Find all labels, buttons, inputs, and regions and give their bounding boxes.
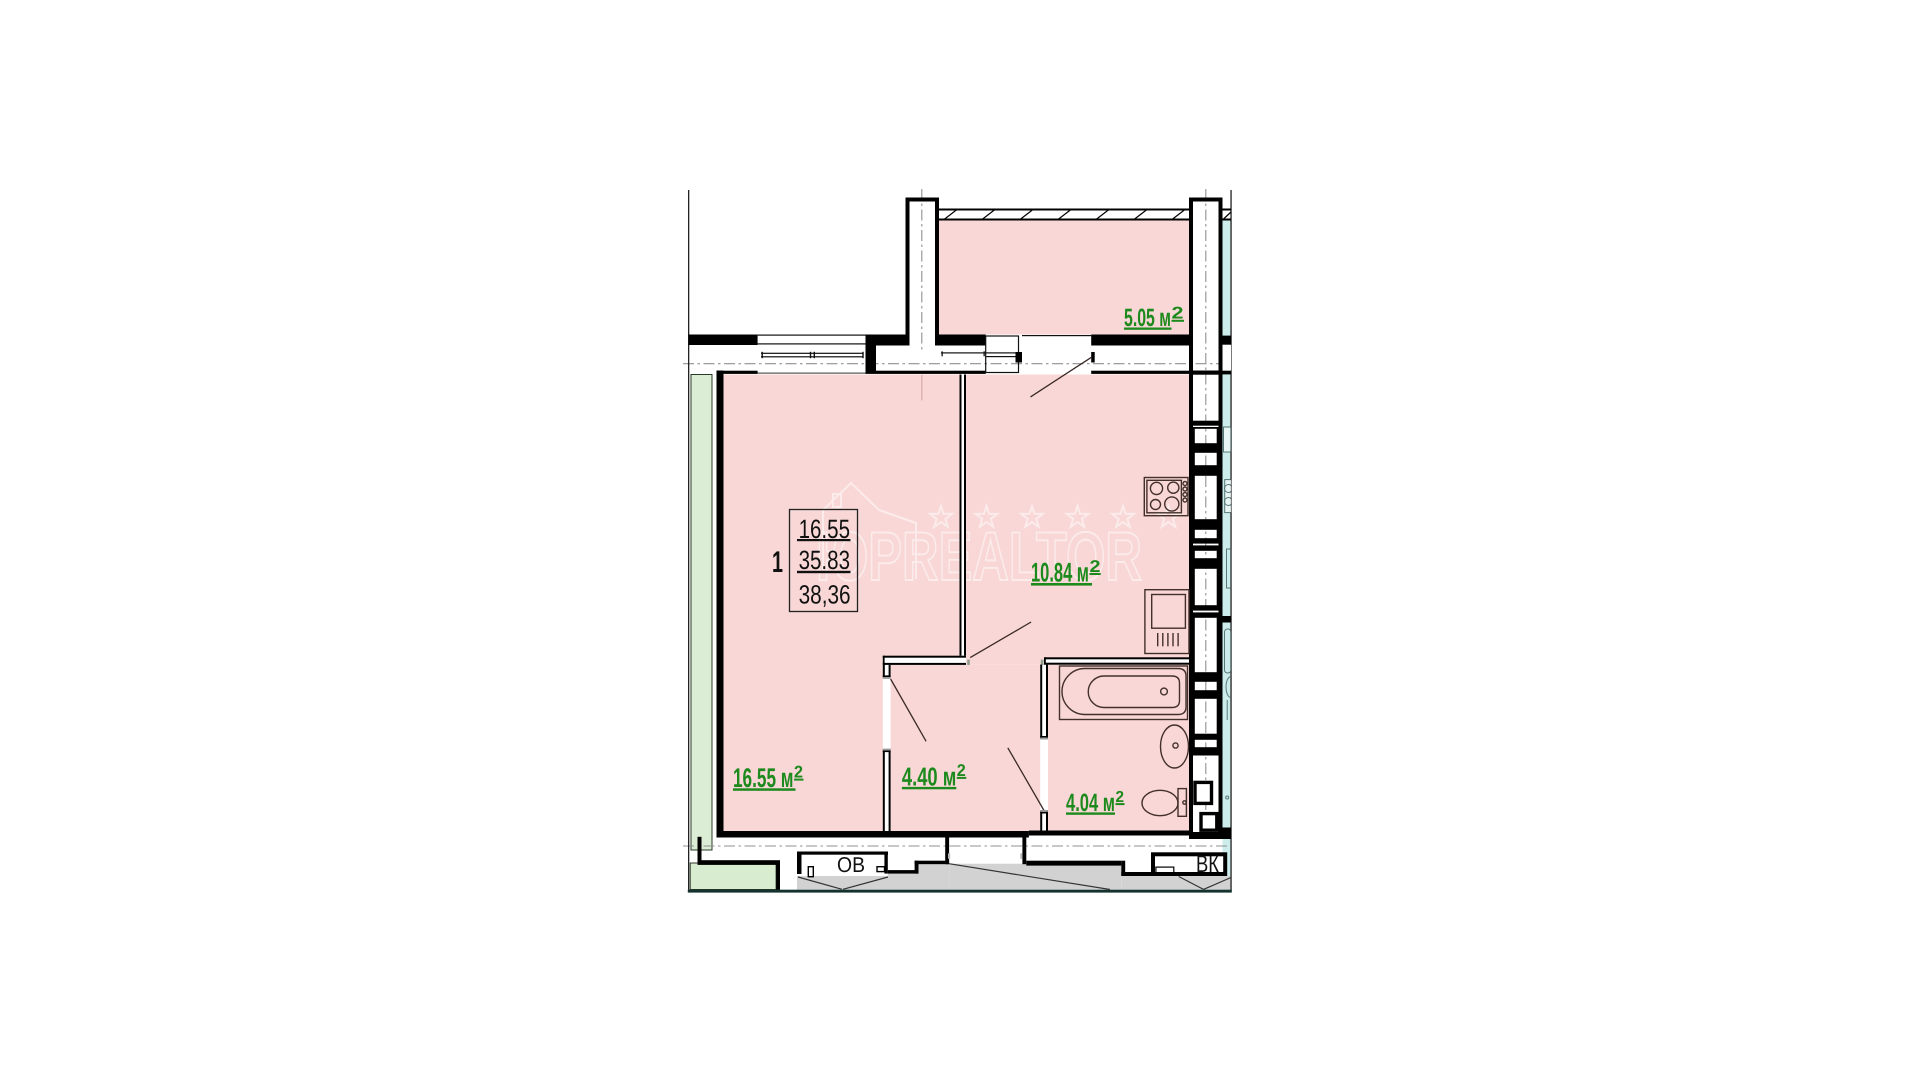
- svg-text:1: 1: [772, 546, 783, 579]
- svg-text:38,36: 38,36: [799, 580, 851, 610]
- svg-text:ВК: ВК: [1196, 851, 1219, 878]
- svg-text:2: 2: [1172, 304, 1184, 323]
- svg-text:ОВ: ОВ: [837, 853, 865, 877]
- svg-text:35.83: 35.83: [799, 545, 850, 575]
